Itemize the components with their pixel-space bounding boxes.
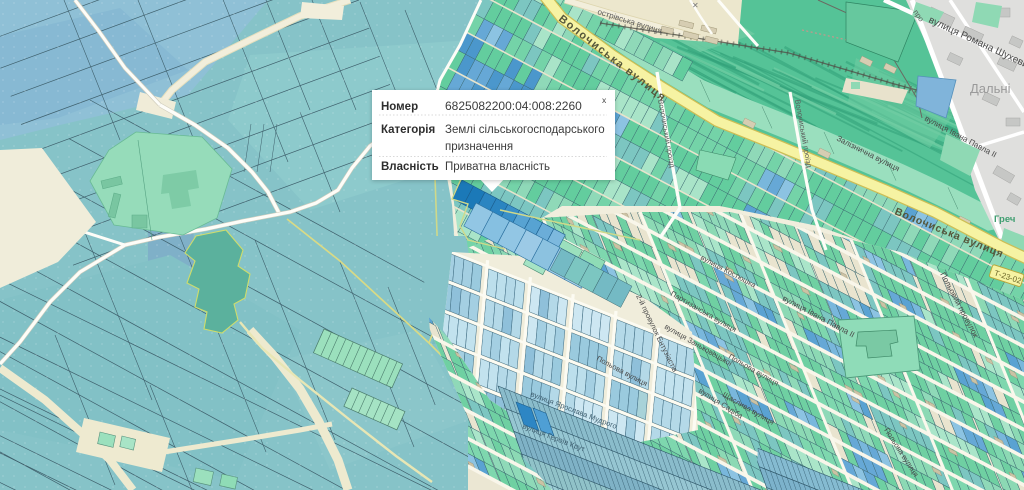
svg-text:Категорія: Категорія — [381, 124, 435, 136]
svg-text:Греч: Греч — [994, 214, 1015, 225]
svg-text:6825082200:04:008:2260: 6825082200:04:008:2260 — [445, 99, 582, 113]
svg-text:Власність: Власність — [381, 161, 439, 173]
svg-text:Приватна власність: Приватна власність — [445, 161, 550, 173]
svg-text:✕: ✕ — [692, 1, 699, 10]
svg-text:призначення: призначення — [445, 141, 513, 153]
svg-text:Номер: Номер — [381, 101, 418, 113]
svg-text:Землі сільськогосподарського: Землі сільськогосподарського — [445, 124, 605, 136]
svg-text:Дальні: Дальні — [970, 81, 1011, 96]
